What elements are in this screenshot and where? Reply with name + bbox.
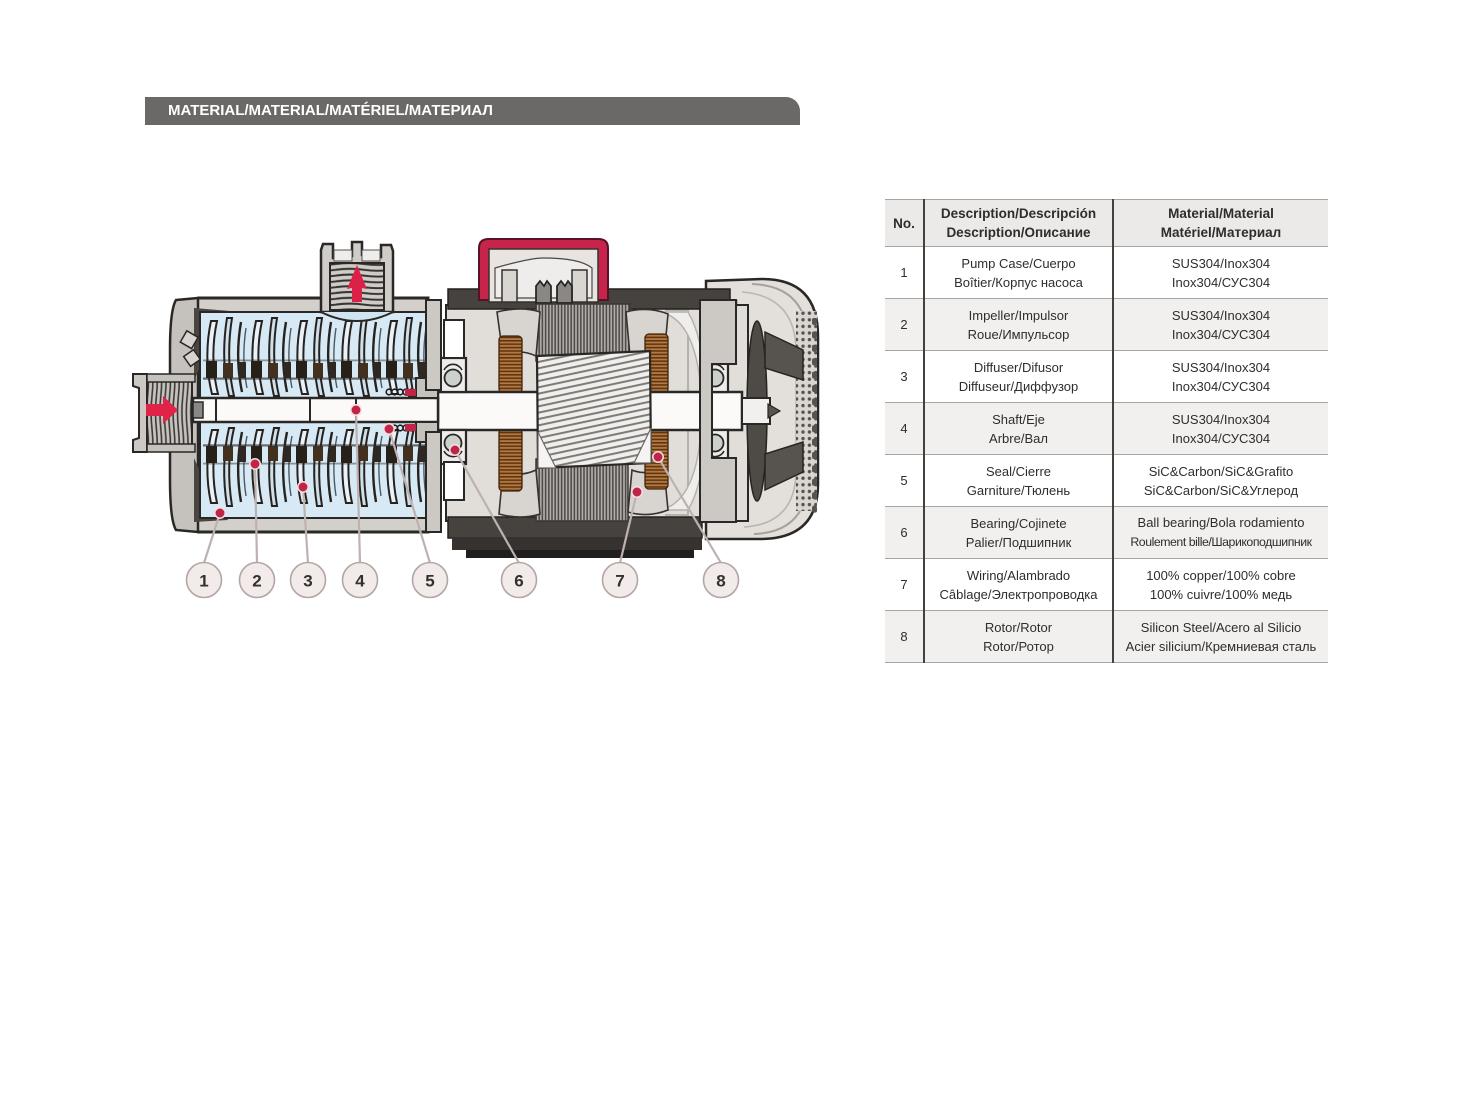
svg-text:8: 8 [716,572,725,591]
svg-text:4: 4 [355,572,365,591]
svg-text:7: 7 [615,572,624,591]
svg-text:2: 2 [252,572,261,591]
svg-text:3: 3 [303,572,312,591]
svg-text:1: 1 [199,572,208,591]
svg-text:6: 6 [514,572,523,591]
svg-text:5: 5 [425,572,434,591]
